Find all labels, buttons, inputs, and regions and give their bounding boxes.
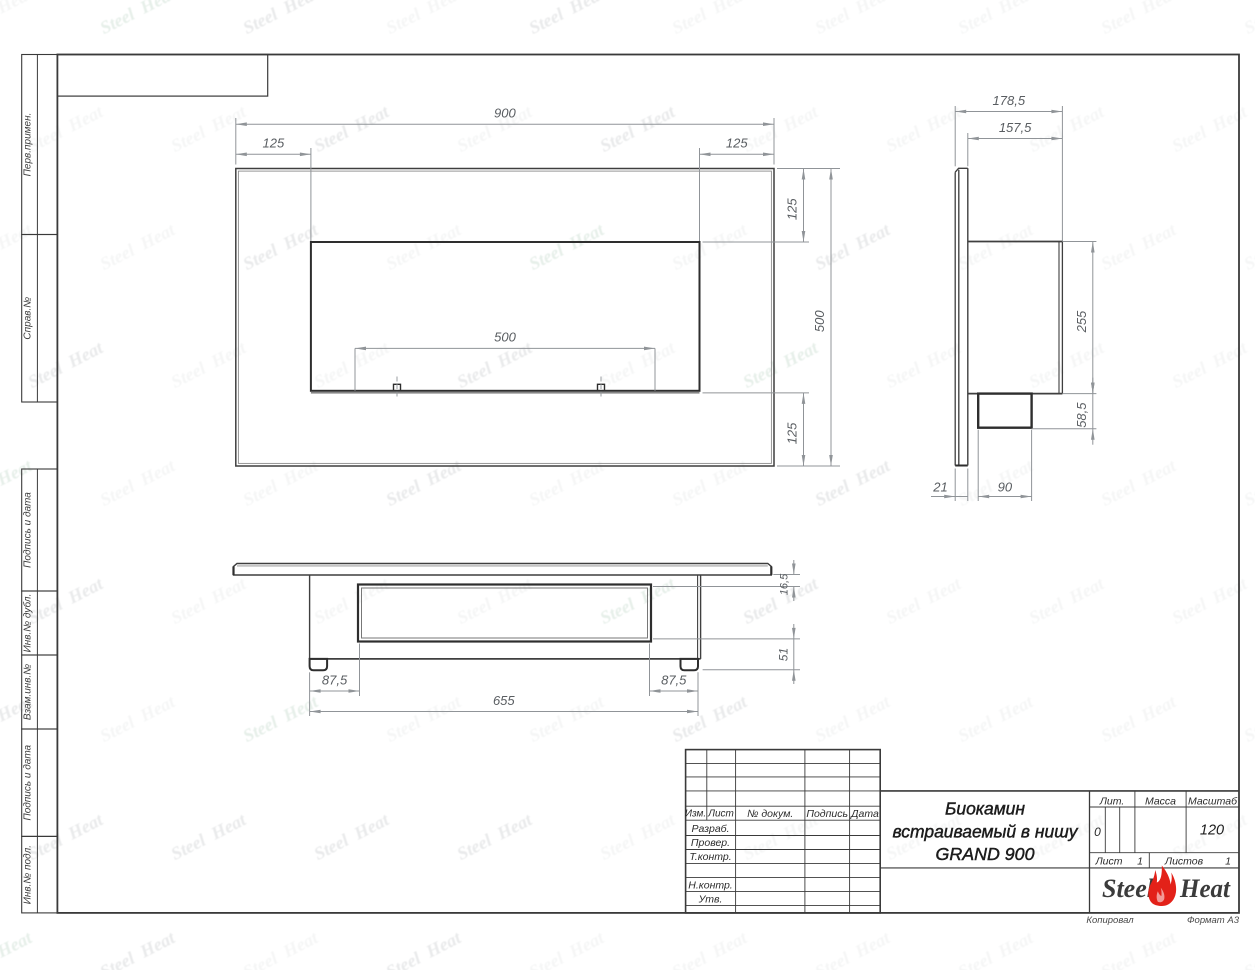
svg-text:Инв.№ подл.: Инв.№ подл.: [23, 845, 34, 904]
svg-text:157,5: 157,5: [999, 120, 1032, 135]
svg-text:16,5: 16,5: [779, 573, 791, 595]
svg-text:125: 125: [726, 136, 748, 151]
svg-text:500: 500: [494, 330, 516, 345]
svg-text:87,5: 87,5: [322, 673, 348, 688]
svg-text:Дата: Дата: [850, 808, 879, 820]
svg-text:87,5: 87,5: [661, 673, 687, 688]
svg-text:Изм.: Изм.: [685, 809, 706, 820]
svg-text:Провер.: Провер.: [691, 837, 730, 849]
svg-text:Формат А3: Формат А3: [1187, 915, 1240, 926]
svg-text:21: 21: [932, 480, 947, 495]
svg-text:125: 125: [785, 198, 800, 220]
svg-text:120: 120: [1200, 823, 1224, 839]
svg-text:Лист: Лист: [1094, 855, 1122, 867]
svg-text:Справ.№: Справ.№: [23, 297, 34, 340]
svg-text:255: 255: [1074, 310, 1089, 333]
svg-text:Т.контр.: Т.контр.: [689, 851, 731, 863]
svg-text:Н.контр.: Н.контр.: [688, 879, 732, 891]
svg-text:Инв.№ дубл.: Инв.№ дубл.: [22, 594, 34, 653]
svg-text:встраиваемый в нишу: встраиваемый в нишу: [893, 822, 1079, 842]
svg-text:900: 900: [494, 106, 516, 121]
svg-text:Разраб.: Разраб.: [692, 823, 730, 835]
svg-text:Лист: Лист: [707, 809, 734, 820]
svg-text:Копировал: Копировал: [1086, 915, 1134, 926]
svg-text:178,5: 178,5: [993, 93, 1026, 108]
svg-text:500: 500: [812, 310, 827, 332]
svg-text:Масса: Масса: [1145, 796, 1176, 808]
svg-text:GRAND 900: GRAND 900: [936, 844, 1035, 864]
svg-text:1: 1: [1225, 855, 1231, 867]
svg-text:51: 51: [777, 648, 791, 661]
svg-text:655: 655: [493, 693, 515, 708]
svg-text:Steel: Steel: [1102, 874, 1155, 903]
svg-text:Листов: Листов: [1164, 855, 1204, 867]
svg-text:Масштаб: Масштаб: [1188, 796, 1238, 808]
svg-text:1: 1: [1137, 855, 1143, 867]
svg-text:Подпись: Подпись: [806, 808, 848, 820]
svg-text:125: 125: [262, 136, 284, 151]
svg-text:90: 90: [998, 480, 1013, 495]
svg-text:Перв.примен.: Перв.примен.: [23, 113, 34, 177]
svg-text:Утв.: Утв.: [698, 893, 723, 905]
svg-text:Биокамин: Биокамин: [945, 799, 1025, 819]
svg-text:Лит.: Лит.: [1099, 796, 1125, 808]
svg-text:Подпись и дата: Подпись и дата: [23, 744, 34, 820]
svg-text:58,5: 58,5: [1074, 402, 1089, 428]
svg-text:0: 0: [1094, 825, 1101, 839]
svg-text:№ докум.: № докум.: [747, 808, 793, 820]
svg-text:Heat: Heat: [1179, 874, 1231, 903]
svg-text:Взам.инв.№: Взам.инв.№: [23, 664, 34, 720]
svg-text:Подпись и дата: Подпись и дата: [23, 492, 34, 568]
svg-text:125: 125: [785, 422, 800, 444]
